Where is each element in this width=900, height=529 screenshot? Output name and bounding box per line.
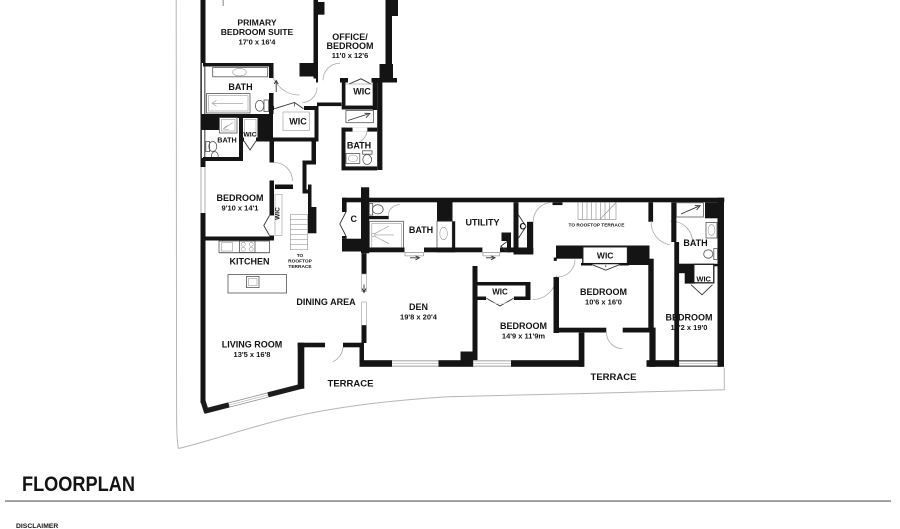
svg-text:C: C [520,222,527,232]
svg-text:DEN: DEN [409,302,428,312]
svg-text:BATH: BATH [217,136,236,145]
svg-text:BEDROOM: BEDROOM [217,193,264,203]
svg-text:WIC: WIC [597,251,614,261]
svg-text:WIC: WIC [243,132,256,139]
svg-text:TO ROOFTOP TERRACE: TO ROOFTOP TERRACE [569,223,626,229]
svg-text:19'8 x 20'4: 19'8 x 20'4 [400,313,438,322]
svg-text:BEDROOM: BEDROOM [327,41,374,51]
svg-text:14'9 x 11'9m: 14'9 x 11'9m [502,332,546,341]
svg-text:WIC: WIC [492,288,508,297]
svg-text:9'10 x 14'1: 9'10 x 14'1 [222,204,259,213]
svg-text:DINING AREA: DINING AREA [296,297,356,307]
svg-text:WIC: WIC [289,117,307,127]
svg-text:11'0 x 12'6: 11'0 x 12'6 [332,51,369,60]
svg-text:10'6 x 16'0: 10'6 x 16'0 [585,298,622,307]
svg-text:PRIMARY: PRIMARY [237,18,277,28]
svg-text:UTILITY: UTILITY [466,218,500,228]
svg-text:TERRACE: TERRACE [328,379,374,390]
svg-text:BATH: BATH [409,225,433,235]
svg-text:ROOFTOP: ROOFTOP [288,259,312,265]
svg-text:DISCLAIMER: DISCLAIMER [16,523,58,529]
svg-text:FLOORPLAN: FLOORPLAN [22,472,135,496]
svg-text:LIVING ROOM: LIVING ROOM [222,340,283,350]
svg-text:BEDROOM: BEDROOM [500,321,547,331]
svg-text:13'5 x 16'8: 13'5 x 16'8 [234,350,271,359]
svg-text:WIC: WIC [696,274,711,283]
svg-text:WIC: WIC [353,87,371,97]
svg-text:TERRACE: TERRACE [591,372,637,383]
svg-text:TO: TO [297,253,304,259]
svg-text:C: C [351,214,358,224]
svg-text:17'0 x 16'4: 17'0 x 16'4 [239,38,277,47]
svg-text:BATH: BATH [347,141,371,151]
svg-text:BEDROOM SUITE: BEDROOM SUITE [221,27,294,37]
svg-text:BATH: BATH [683,238,707,248]
svg-text:TERRACE: TERRACE [288,264,312,270]
svg-text:BEDROOM: BEDROOM [666,313,713,323]
svg-text:12'2 x 19'0: 12'2 x 19'0 [671,323,708,332]
svg-text:BEDROOM: BEDROOM [580,287,627,297]
svg-text:KITCHEN: KITCHEN [230,257,270,267]
svg-text:BATH: BATH [228,82,252,92]
svg-text:WIC: WIC [275,207,282,220]
